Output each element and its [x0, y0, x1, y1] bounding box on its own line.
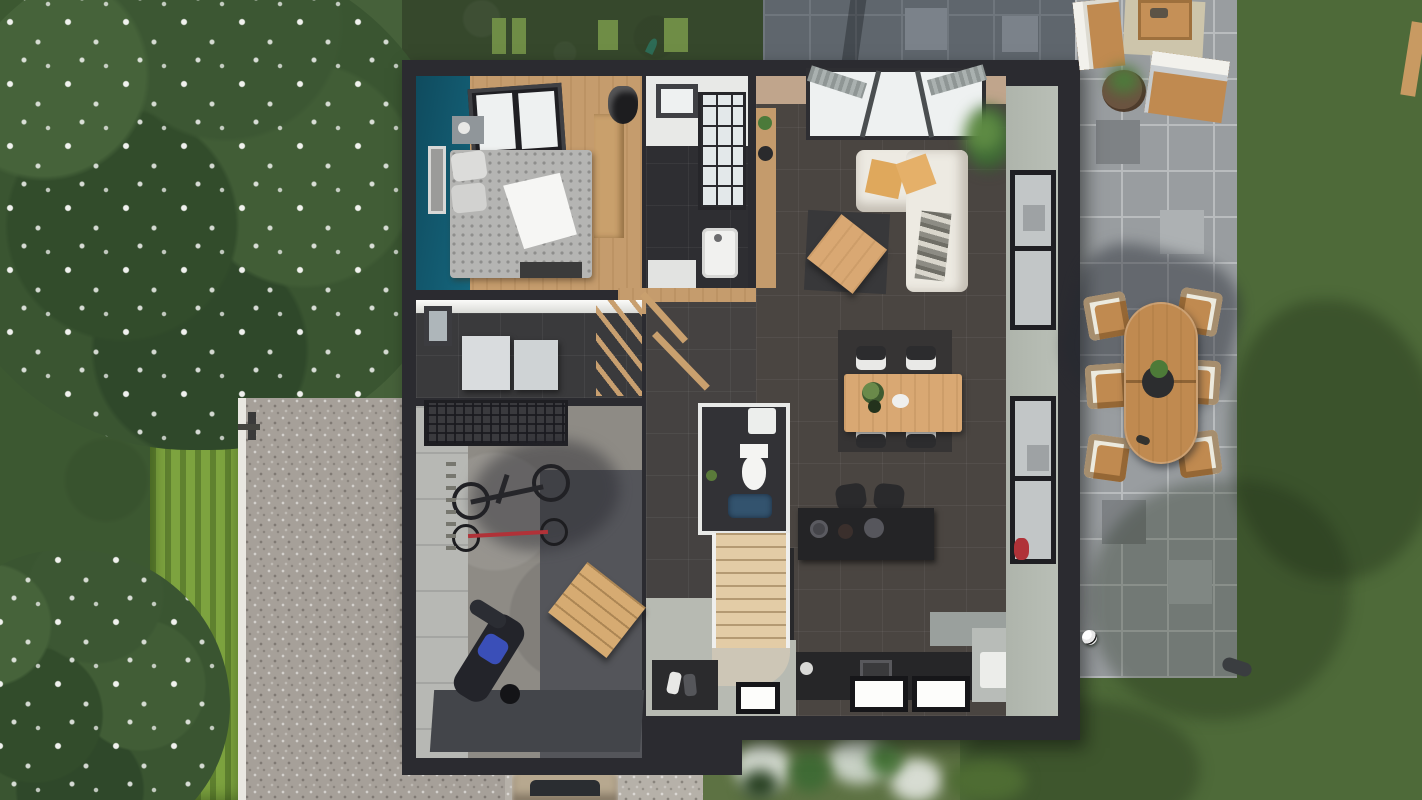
bike-wall-rack — [446, 462, 456, 558]
wc-deco — [706, 470, 717, 481]
dining-chair — [856, 346, 886, 370]
motorcycle-wheel — [500, 684, 520, 704]
wc-blue-mat — [728, 494, 772, 518]
paver-patch — [1096, 120, 1140, 164]
utility-window — [424, 306, 452, 346]
grass-patch — [512, 18, 526, 54]
soccer-ball — [1082, 630, 1097, 645]
table-lamp — [758, 146, 773, 161]
mailbox-arm — [238, 424, 260, 430]
grass-patch — [598, 20, 618, 50]
lounge-coffee-table — [1138, 0, 1192, 40]
walk-in-shower — [698, 92, 746, 210]
wardrobe — [594, 114, 624, 238]
bed-foot-runner — [520, 262, 582, 278]
grass-patch — [492, 18, 506, 54]
garage-floor-mat — [430, 690, 644, 752]
lounge-sofa-horizontal — [1144, 51, 1230, 123]
paver-patch — [1160, 210, 1204, 254]
lounge-sofa-vertical — [1073, 0, 1126, 70]
green-shrub — [868, 742, 902, 776]
living-potted-plant — [964, 106, 1012, 170]
dining-chair — [906, 346, 936, 370]
washer — [462, 336, 510, 390]
dining-table-bowl — [892, 394, 909, 408]
sideboard — [756, 108, 776, 288]
red-bike-wheel — [452, 524, 480, 552]
outdoor-chair — [1085, 363, 1130, 410]
east-window-upper-mullion — [1010, 246, 1056, 251]
dining-table-pot — [868, 400, 881, 413]
nightstand-vase — [458, 122, 470, 134]
floor-plan-render — [0, 0, 1422, 800]
bathroom-roof-window — [656, 84, 698, 118]
island-sink — [810, 520, 828, 538]
bed-pillow — [451, 182, 488, 213]
floor-window — [850, 676, 908, 712]
lounge-table-item — [1150, 8, 1168, 18]
bathroom-ledge — [648, 260, 696, 288]
wall-art-frame — [428, 146, 446, 214]
planter-plant — [1108, 66, 1140, 94]
entry-floor-window — [736, 682, 780, 714]
sideboard-plant — [758, 116, 772, 130]
car-windshield — [530, 780, 600, 796]
island-bowl — [838, 524, 853, 539]
red-toy — [1014, 538, 1029, 560]
wooden-staircase — [712, 533, 790, 653]
dryer — [514, 340, 558, 390]
bed-pillow — [450, 150, 488, 182]
driveway-kerb — [238, 398, 246, 800]
outdoor-chair — [1083, 433, 1131, 482]
washbasin-tap — [714, 234, 722, 242]
bedroom-roof-window-pane — [518, 91, 558, 149]
wc-toilet-bowl — [742, 456, 766, 490]
kitchen-kettle — [800, 662, 813, 675]
paver-patch — [905, 8, 947, 50]
dark-grass-tuft — [742, 770, 778, 800]
paver-patch — [1002, 16, 1038, 52]
centerpiece-plant — [1150, 360, 1168, 378]
floor-window — [912, 676, 970, 712]
green-shrub — [790, 752, 830, 792]
top-lawn-strip — [402, 0, 764, 62]
wc-washbasin — [748, 408, 776, 434]
grass-patch — [664, 18, 688, 52]
island-light-dot — [864, 518, 884, 538]
shoes — [683, 673, 697, 696]
wood-handrail — [596, 300, 642, 396]
pendant-lamp — [608, 86, 638, 124]
bush — [948, 760, 1026, 800]
east-window-lower-mullion — [1010, 476, 1056, 481]
black-bike-wheel — [532, 464, 570, 502]
